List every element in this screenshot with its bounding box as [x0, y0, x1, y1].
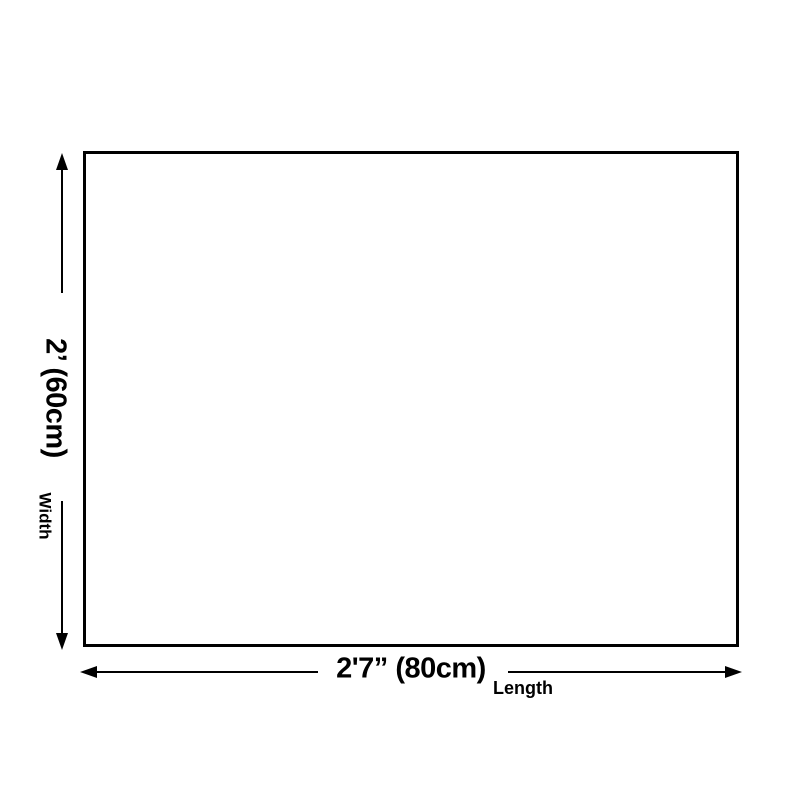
product-size-diagram: 2’ (60cm) Width 2'7” (80cm) Length: [0, 0, 800, 800]
length-dimension-line-left: [94, 671, 318, 674]
width-dimension-line-upper: [61, 168, 64, 293]
arrow-right-icon: [725, 666, 742, 678]
width-dimension-value: 2’ (60cm): [41, 338, 70, 458]
arrow-down-icon: [56, 633, 68, 650]
width-axis-label: Width: [37, 492, 54, 539]
length-axis-label: Length: [493, 679, 553, 697]
length-dimension-line-right: [508, 671, 726, 674]
product-outline-rectangle: [83, 151, 739, 647]
length-dimension-value: 2'7” (80cm): [336, 655, 486, 684]
width-dimension-line-lower: [61, 501, 64, 634]
